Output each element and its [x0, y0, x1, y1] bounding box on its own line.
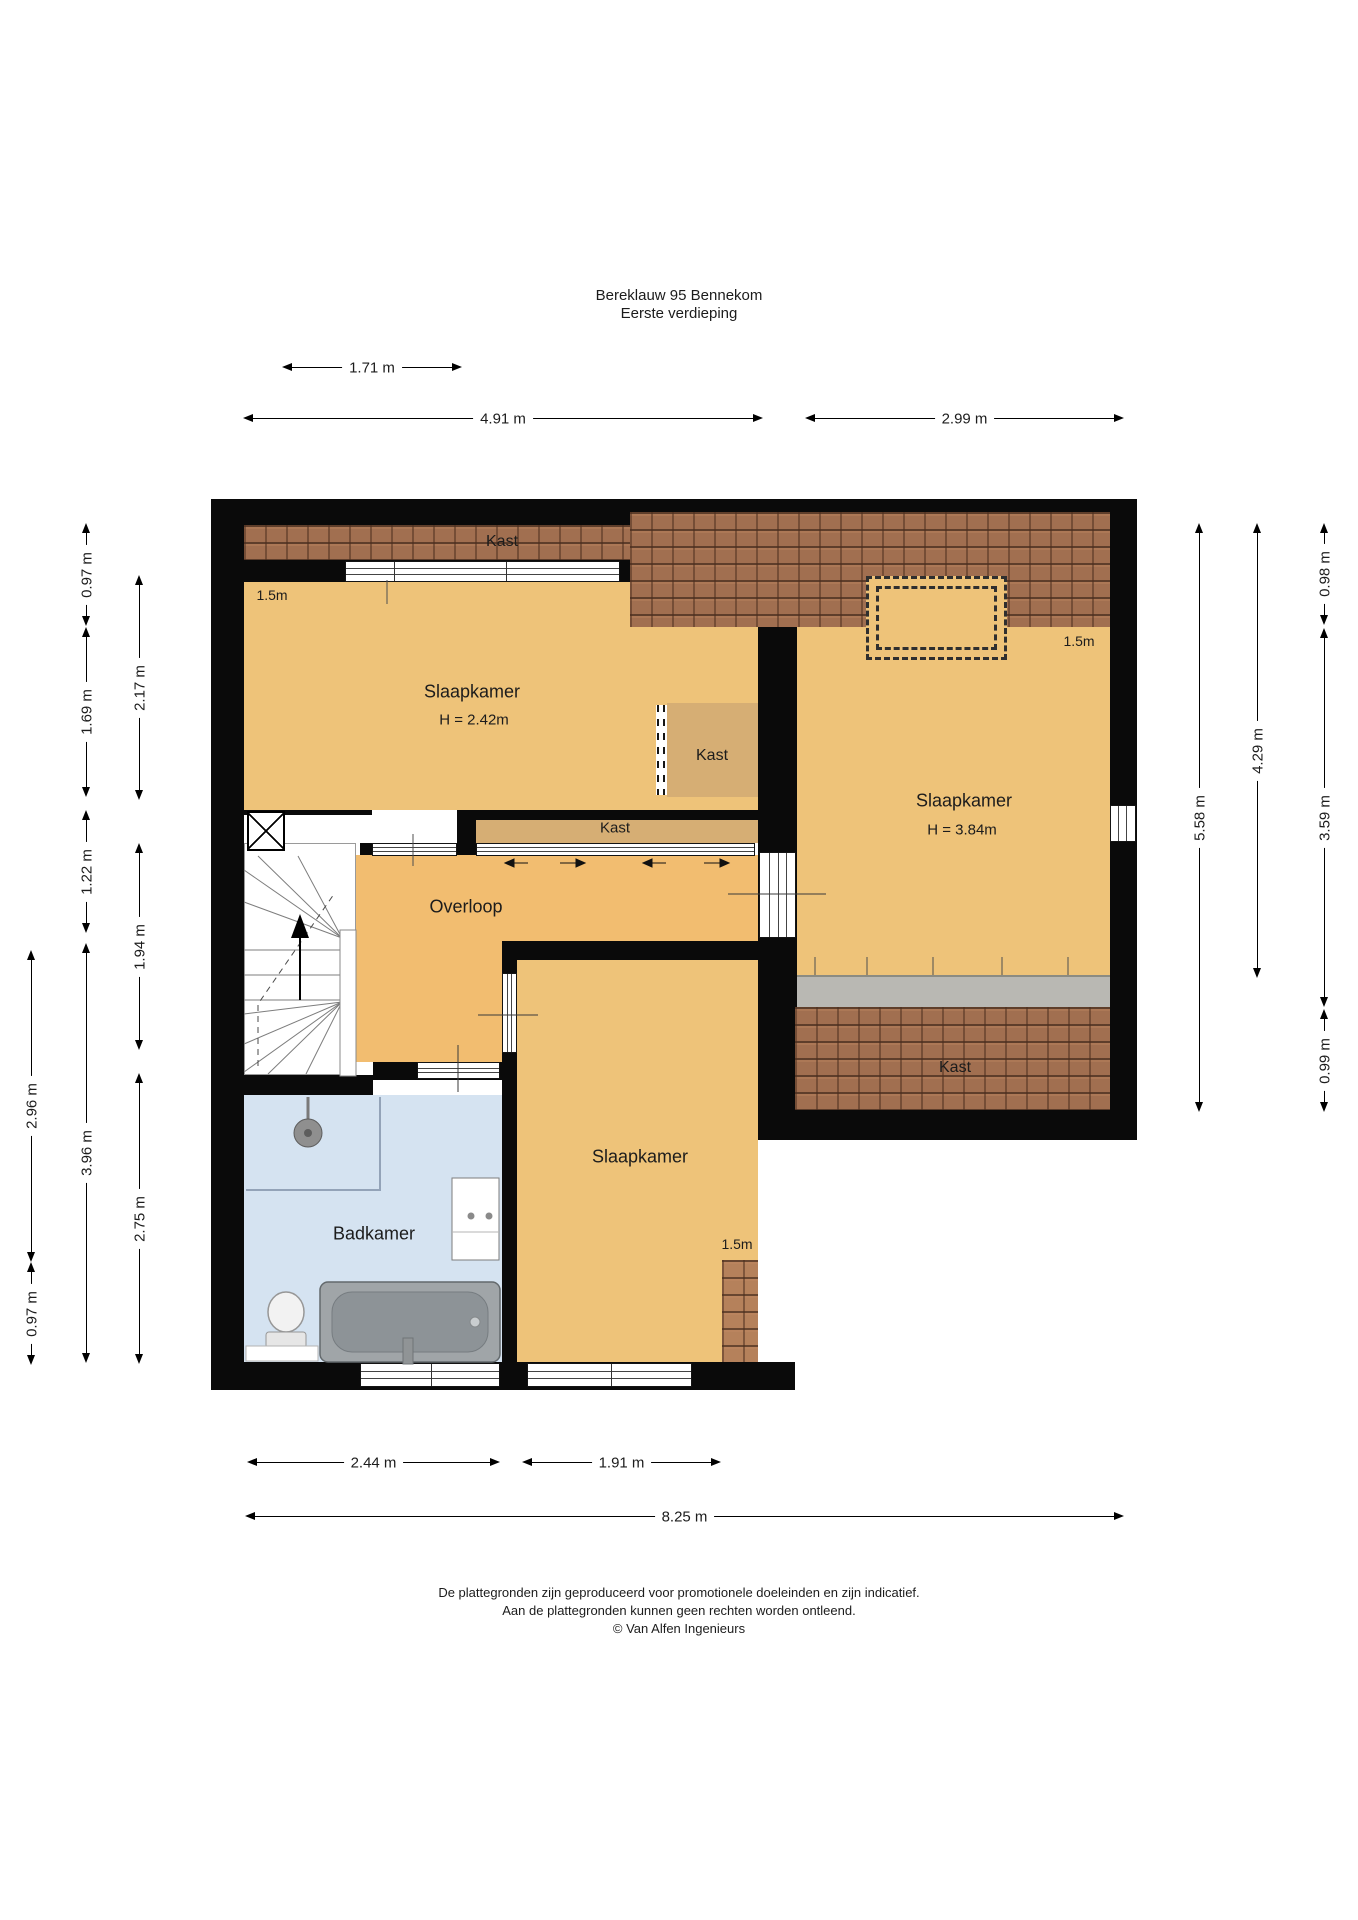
dimension-left-4: 3.96 m: [79, 943, 95, 1363]
dimension-left-6: 1.94 m: [132, 843, 148, 1050]
room-label-closet-top: Kast: [486, 533, 518, 551]
sliding-direction-arrows: [505, 859, 729, 867]
door-swing-lines: [458, 894, 826, 1092]
dimension-right-1: 5.58 m: [1192, 523, 1208, 1112]
windowsill-shelf: [246, 1346, 318, 1361]
dimension-left-2: 1.69 m: [79, 627, 95, 797]
footer-disclaimer-2: Aan de plattegronden kunnen geen rechten…: [0, 1603, 1358, 1618]
bathtub: [320, 1282, 500, 1364]
bathtub-drain-icon: [470, 1317, 480, 1327]
dimension-right-5: 0.99 m: [1317, 1009, 1333, 1112]
floor-plan-page: Bereklauw 95 Bennekom Eerste verdieping: [0, 0, 1358, 1920]
ceiling-height-bedroom-left: H = 2.42m: [439, 712, 509, 729]
dimension-right-2: 4.29 m: [1250, 523, 1266, 978]
footer-copyright: © Van Alfen Ingenieurs: [0, 1621, 1358, 1636]
dimension-left-1: 0.97 m: [79, 523, 95, 626]
dimension-left-7: 2.75 m: [132, 1073, 148, 1364]
dimension-right-3: 0.98 m: [1317, 523, 1333, 625]
room-label-closet-bedroom-right: Kast: [939, 1059, 971, 1077]
sink: [452, 1178, 499, 1260]
dimension-top-2: 4.91 m: [243, 411, 763, 427]
room-label-bathroom: Badkamer: [333, 1224, 415, 1245]
dimension-bottom-2: 1.91 m: [522, 1455, 721, 1471]
room-label-bedroom-right: Slaapkamer: [916, 791, 1012, 812]
room-label-landing: Overloop: [429, 897, 502, 918]
dimension-left-9: 0.97 m: [24, 1262, 40, 1365]
toilet: [266, 1292, 306, 1348]
dimension-top-3: 2.99 m: [805, 411, 1124, 427]
roof-height-label-bottom: 1.5m: [721, 1236, 752, 1252]
dimension-top-1: 1.71 m: [282, 360, 462, 376]
room-label-bedroom-bottom: Slaapkamer: [592, 1147, 688, 1168]
roof-height-label-left: 1.5m: [256, 587, 287, 603]
dimension-right-4: 3.59 m: [1317, 628, 1333, 1007]
dimension-left-3: 1.22 m: [79, 810, 95, 933]
dimension-bottom-3: 8.25 m: [245, 1509, 1124, 1525]
room-label-closet-middle: Kast: [696, 747, 728, 765]
dimension-left-5: 2.17 m: [132, 575, 148, 800]
bathtub-faucet-icon: [403, 1338, 413, 1364]
ceiling-height-bedroom-right: H = 3.84m: [927, 822, 997, 839]
shower: [246, 1097, 380, 1190]
room-label-closet-hall: Kast: [600, 820, 630, 837]
roof-height-label-right: 1.5m: [1063, 633, 1094, 649]
room-label-bedroom-left: Slaapkamer: [424, 682, 520, 703]
stairs-up-arrow-icon: [291, 914, 309, 938]
dimension-left-8: 2.96 m: [24, 950, 40, 1262]
dimension-bottom-1: 2.44 m: [247, 1455, 500, 1471]
footer-disclaimer-1: De plattegronden zijn geproduceerd voor …: [0, 1585, 1358, 1600]
